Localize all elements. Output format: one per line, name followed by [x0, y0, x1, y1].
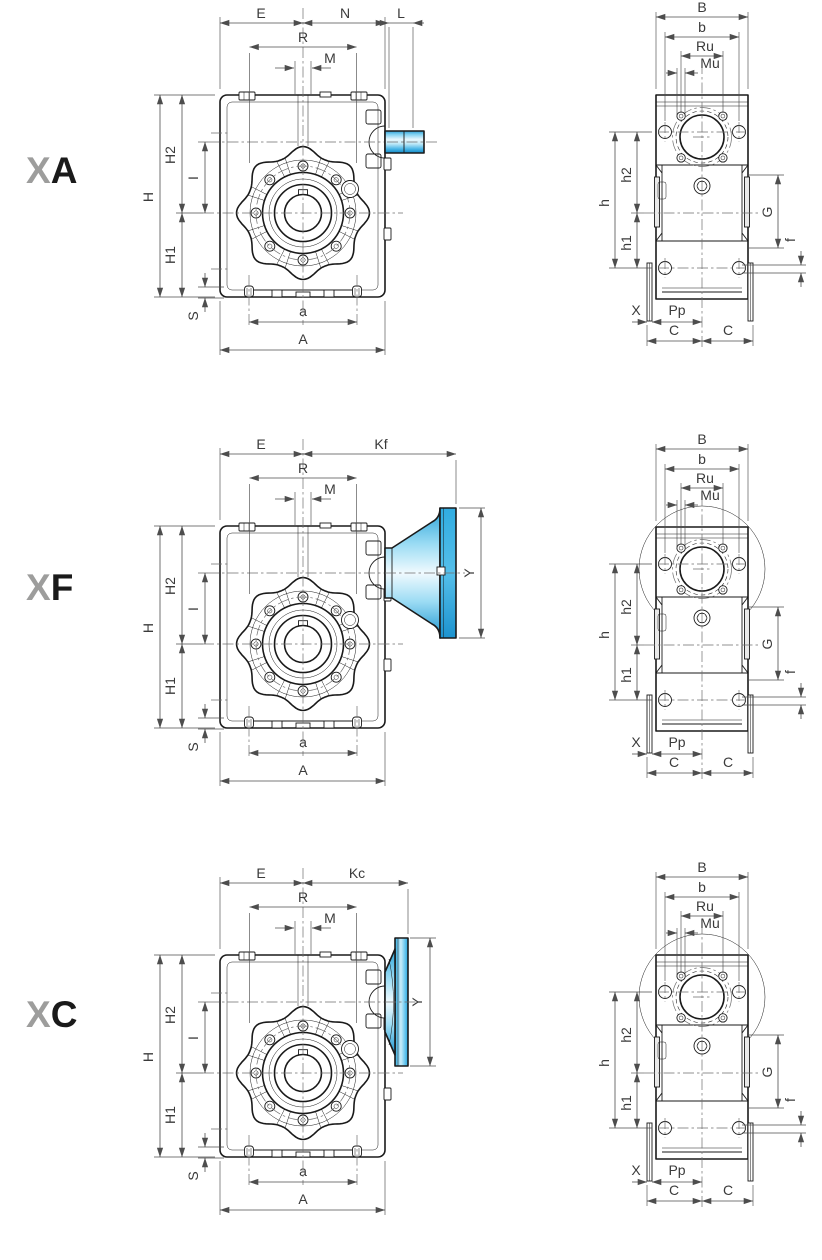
dim-label-Pp: Pp [668, 734, 685, 750]
dim-label-Pp: Pp [668, 302, 685, 318]
variant-label-xf: XF [26, 567, 73, 608]
dim-label-S: S [185, 742, 201, 751]
variant-label-x: X [26, 994, 51, 1035]
dim-label-E: E [256, 436, 265, 452]
dim-label-b: b [698, 879, 706, 895]
front-view-xc: E Kc Y R M H H2 H1 I S a A [140, 865, 436, 1215]
side-view-xf: B b Ru Mu h h2 h1 G f X Pp C C [596, 431, 806, 779]
dim-label-h1: h1 [618, 667, 634, 683]
dim-label-N: N [340, 5, 350, 21]
dim-label-a: a [299, 303, 307, 319]
dim-label-h: h [596, 199, 612, 207]
dim-label-R: R [298, 29, 308, 45]
dim-label-M: M [324, 481, 336, 497]
dim-label-B: B [697, 431, 706, 447]
dim-label-H: H [140, 1052, 156, 1062]
dim-label-E: E [256, 5, 265, 21]
dim-label-R: R [298, 460, 308, 476]
dim-label-b: b [698, 451, 706, 467]
dim-label-H1: H1 [162, 246, 178, 264]
dim-label-f: f [782, 670, 798, 674]
dim-label-h: h [596, 631, 612, 639]
dim-label-b: b [698, 19, 706, 35]
dim-label-R: R [298, 889, 308, 905]
dim-label-G: G [759, 207, 775, 218]
dim-label-A: A [298, 1191, 308, 1207]
dim-label-Mu: Mu [700, 487, 719, 503]
variant-label-x: X [26, 567, 51, 608]
front-view-xa: E N L R M H H2 H1 I S a A [140, 5, 437, 355]
catalog-drawing-page: XA E N L R M H H2 H1 I S a A [0, 0, 822, 1255]
dim-label-a: a [299, 734, 307, 750]
dim-label-C-left: C [669, 1182, 679, 1198]
motor-flange-bell [385, 508, 465, 638]
variant-label-letter: C [51, 994, 78, 1035]
dim-label-C-right: C [723, 322, 733, 338]
dim-label-I: I [185, 176, 201, 180]
row-xa: XA E N L R M H H2 H1 I S a A [26, 0, 806, 355]
dim-label-I: I [185, 607, 201, 611]
gearbox-dimension-drawings: XA E N L R M H H2 H1 I S a A [0, 0, 822, 1255]
dim-label-S: S [185, 1171, 201, 1180]
dim-label-C-left: C [669, 754, 679, 770]
dim-label-H: H [140, 623, 156, 633]
dim-label-a: a [299, 1163, 307, 1179]
dim-label-H: H [140, 192, 156, 202]
variant-label-xc: XC [26, 994, 77, 1035]
dim-label-h2: h2 [618, 1027, 634, 1043]
dim-label-Ru: Ru [696, 898, 714, 914]
dim-label-H1: H1 [162, 677, 178, 695]
dim-label-h2: h2 [618, 599, 634, 615]
dim-label-G: G [759, 639, 775, 650]
dim-label-Kc: Kc [349, 865, 365, 881]
front-view-xf: E Kf Y R M H H2 H1 I S a A [140, 436, 485, 786]
dim-label-C-left: C [669, 322, 679, 338]
dim-label-H2: H2 [162, 1006, 178, 1024]
dim-label-Y: Y [461, 568, 477, 578]
dim-label-H2: H2 [162, 577, 178, 595]
dim-label-G: G [759, 1067, 775, 1078]
row-xc: XC E Kc Y R M H H2 H1 I S a A [26, 859, 806, 1215]
dim-label-X: X [631, 1162, 641, 1178]
row-xf: XF E Kf Y R M H H2 H1 I S a A [26, 431, 806, 786]
dim-label-A: A [298, 762, 308, 778]
dim-label-Ru: Ru [696, 470, 714, 486]
dim-label-h1: h1 [618, 235, 634, 251]
dim-label-H2: H2 [162, 146, 178, 164]
dim-label-H1: H1 [162, 1106, 178, 1124]
variant-label-x: X [26, 150, 51, 191]
dim-label-C-right: C [723, 1182, 733, 1198]
dim-label-X: X [631, 734, 641, 750]
input-shaft [385, 131, 437, 153]
dim-label-C-right: C [723, 754, 733, 770]
dim-label-Mu: Mu [700, 55, 719, 71]
dim-label-M: M [324, 50, 336, 66]
variant-label-letter: A [51, 150, 78, 191]
dim-label-B: B [697, 0, 706, 15]
dim-label-S: S [185, 311, 201, 320]
dim-label-h1: h1 [618, 1095, 634, 1111]
dim-label-M: M [324, 910, 336, 926]
dim-label-h2: h2 [618, 167, 634, 183]
variant-label-letter: F [51, 567, 74, 608]
dim-label-Kf: Kf [374, 436, 387, 452]
dim-label-L: L [397, 5, 405, 21]
variant-label-xa: XA [26, 150, 77, 191]
dim-label-Pp: Pp [668, 1162, 685, 1178]
dim-label-X: X [631, 302, 641, 318]
side-view-xc: B b Ru Mu h h2 h1 G f X Pp C C [596, 859, 806, 1207]
dim-label-Mu: Mu [700, 915, 719, 931]
dim-label-Ru: Ru [696, 38, 714, 54]
dim-label-Y: Y [409, 997, 425, 1007]
dim-label-h: h [596, 1059, 612, 1067]
dim-label-f: f [782, 1098, 798, 1102]
dim-label-f: f [782, 238, 798, 242]
dim-label-I: I [185, 1036, 201, 1040]
dim-label-E: E [256, 865, 265, 881]
dim-label-A: A [298, 331, 308, 347]
dim-label-B: B [697, 859, 706, 875]
side-view-xa: B b Ru Mu h h2 h1 G f X Pp C C [596, 0, 806, 347]
